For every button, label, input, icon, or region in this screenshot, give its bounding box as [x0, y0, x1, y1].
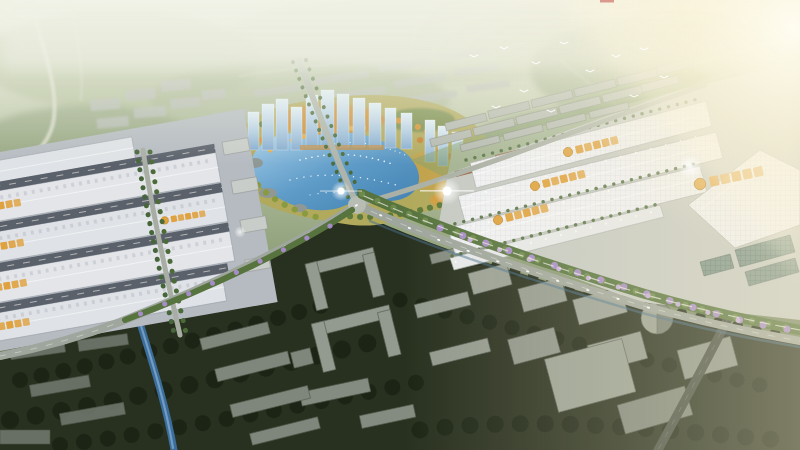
- edge-watermark-fragment: [600, 0, 614, 3]
- aerial-rendering: [0, 0, 800, 450]
- rendering-canvas: [0, 0, 800, 450]
